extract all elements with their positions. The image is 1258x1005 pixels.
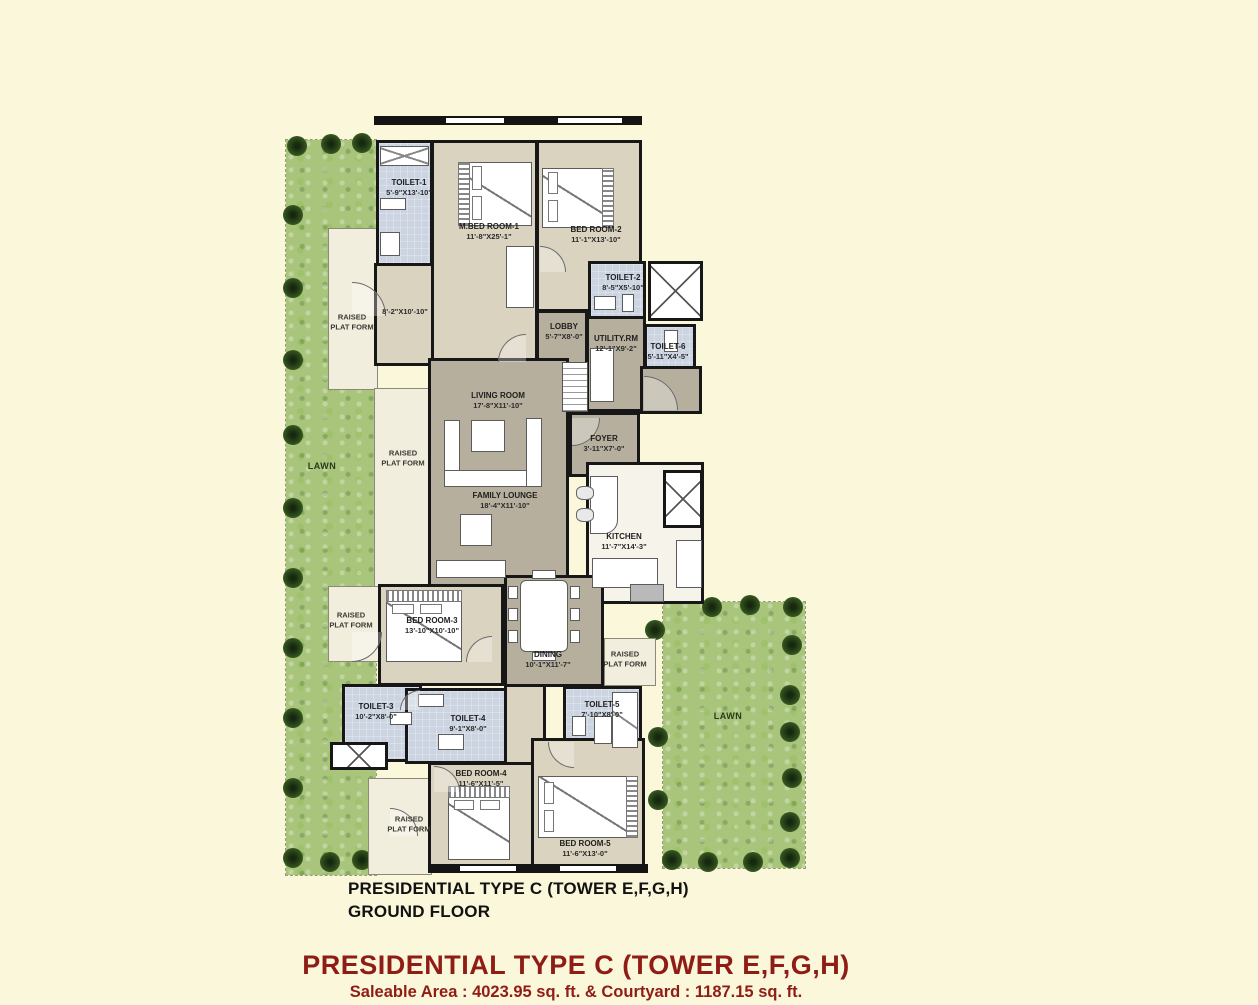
elevator-shaft — [648, 261, 703, 321]
tree-icon — [283, 498, 303, 518]
label-utility: UTILITY.RM12'-1"X9'-2" — [594, 334, 638, 354]
tree-icon — [283, 205, 303, 225]
dining-chair — [508, 630, 518, 643]
dining-chair — [532, 570, 556, 579]
tree-icon — [780, 722, 800, 742]
tree-icon — [780, 812, 800, 832]
window — [560, 865, 616, 872]
label-foyer: FOYER3'-11"X7'-0" — [583, 434, 624, 454]
tree-icon — [283, 350, 303, 370]
staircase — [562, 362, 588, 412]
dining-chair — [508, 608, 518, 621]
sofa-arm-right — [526, 418, 542, 487]
pillow — [454, 800, 474, 810]
lounge-shelf — [436, 560, 506, 578]
label-toilet-1: TOILET-15'-9"X13'-10" — [386, 178, 432, 198]
label-lobby: LOBBY5'-7"X8'-0" — [545, 322, 582, 342]
dining-table — [520, 580, 568, 652]
tree-icon — [783, 597, 803, 617]
tree-icon — [283, 425, 303, 445]
page-footer: PRESIDENTIAL TYPE C (TOWER E,F,G,H) Sale… — [270, 950, 882, 1002]
pillow — [472, 166, 482, 190]
tree-icon — [283, 778, 303, 798]
couch-master — [506, 246, 534, 308]
coffee-table — [471, 420, 505, 452]
window — [460, 865, 516, 872]
label-bedroom-2: BED ROOM-211'-1"X13'-10" — [570, 225, 621, 245]
plan-caption: PRESIDENTIAL TYPE C (TOWER E,F,G,H) GROU… — [348, 878, 689, 924]
footer-subtitle: Saleable Area : 4023.95 sq. ft. & Courty… — [270, 983, 882, 1002]
label-bedroom-4: BED ROOM-411'-6"X11'-5" — [455, 769, 506, 789]
floor-plan-page: TOILET-15'-9"X13'-10" M.BED ROOM-111'-8"… — [0, 0, 1258, 1005]
label-bedroom-3: BED ROOM-313'-10"X10'-10" — [405, 616, 459, 636]
label-kitchen: KITCHEN11'-7"X14'-3" — [601, 532, 646, 552]
window — [446, 117, 504, 124]
dining-chair — [570, 630, 580, 643]
pillow — [420, 604, 442, 614]
tree-icon — [648, 727, 668, 747]
plan-caption-line2: GROUND FLOOR — [348, 901, 689, 924]
label-passage-dim: 8'-2"X10'-10" — [382, 307, 428, 317]
tree-icon — [283, 708, 303, 728]
label-bedroom-5: BED ROOM-511'-6"X13'-0" — [559, 839, 610, 859]
kitchen-counter — [590, 476, 618, 534]
label-raised-platform: RAISED PLAT FORM — [329, 610, 372, 630]
tree-icon — [698, 852, 718, 872]
window — [558, 117, 622, 124]
tree-icon — [740, 595, 760, 615]
pillow — [392, 604, 414, 614]
label-lawn-left: LAWN — [308, 461, 337, 471]
tree-icon — [283, 638, 303, 658]
label-raised-platform: RAISED PLAT FORM — [330, 312, 373, 332]
washbasin — [418, 694, 444, 707]
tree-icon — [702, 597, 722, 617]
washbasin — [594, 296, 616, 310]
closet-shaft — [330, 742, 388, 770]
footer-title: PRESIDENTIAL TYPE C (TOWER E,F,G,H) — [270, 950, 882, 981]
wc — [438, 734, 464, 750]
pillow — [548, 200, 558, 222]
dining-chair — [570, 586, 580, 599]
tree-icon — [287, 136, 307, 156]
hob-burner — [576, 508, 594, 522]
bed-headboard — [458, 162, 470, 226]
tree-icon — [352, 133, 372, 153]
plan-caption-line1: PRESIDENTIAL TYPE C (TOWER E,F,G,H) — [348, 878, 689, 901]
tree-icon — [645, 620, 665, 640]
label-toilet-4: TOILET-49'-1"X8'-0" — [449, 714, 486, 734]
tree-icon — [283, 278, 303, 298]
tree-icon — [283, 568, 303, 588]
wc — [622, 294, 634, 312]
tree-icon — [283, 848, 303, 868]
dining-chair — [508, 586, 518, 599]
tree-icon — [780, 848, 800, 868]
utility-cot — [590, 348, 614, 402]
tree-icon — [648, 790, 668, 810]
label-toilet-5: TOILET-57'-10"X8'-0" — [581, 700, 623, 720]
pillow — [544, 810, 554, 832]
bed-headboard — [386, 590, 462, 602]
bed-headboard — [602, 168, 614, 228]
pillow — [472, 196, 482, 220]
pillow — [544, 782, 554, 804]
washbasin — [594, 716, 612, 744]
service-shaft — [663, 470, 703, 528]
label-living-room: LIVING ROOM17'-8"X11'-10" — [471, 391, 525, 411]
label-raised-platform: RAISED PLAT FORM — [381, 448, 424, 468]
pillow — [548, 172, 558, 194]
label-raised-platform: RAISED PLAT FORM — [603, 649, 646, 669]
washbasin — [380, 198, 406, 210]
tree-icon — [743, 852, 763, 872]
pillow — [480, 800, 500, 810]
kitchen-counter — [676, 540, 702, 588]
tree-icon — [782, 635, 802, 655]
wc — [380, 232, 400, 256]
label-lawn-right: LAWN — [714, 711, 743, 721]
dining-chair — [570, 608, 580, 621]
lounge-table — [460, 514, 492, 546]
hob-burner — [576, 486, 594, 500]
tree-icon — [321, 134, 341, 154]
tree-icon — [782, 768, 802, 788]
label-master-bedroom-1: M.BED ROOM-111'-8"X25'-1" — [459, 222, 519, 242]
label-family-lounge: FAMILY LOUNGE18'-4"X11'-10" — [473, 491, 538, 511]
label-toilet-2: TOILET-28'-5"X5'-10" — [602, 273, 644, 293]
label-toilet-6: TOILET-65'-11"X4'-5" — [647, 342, 688, 362]
bed-headboard — [626, 776, 638, 838]
kitchen-sink — [630, 584, 664, 602]
tree-icon — [780, 685, 800, 705]
label-toilet-3: TOILET-310'-2"X8'-0" — [355, 702, 397, 722]
label-dining: DINING10'-1"X11'-7" — [525, 650, 570, 670]
label-raised-platform: RAISED PLAT FORM — [387, 814, 430, 834]
shower-tray — [380, 146, 429, 166]
tree-icon — [320, 852, 340, 872]
tree-icon — [662, 850, 682, 870]
